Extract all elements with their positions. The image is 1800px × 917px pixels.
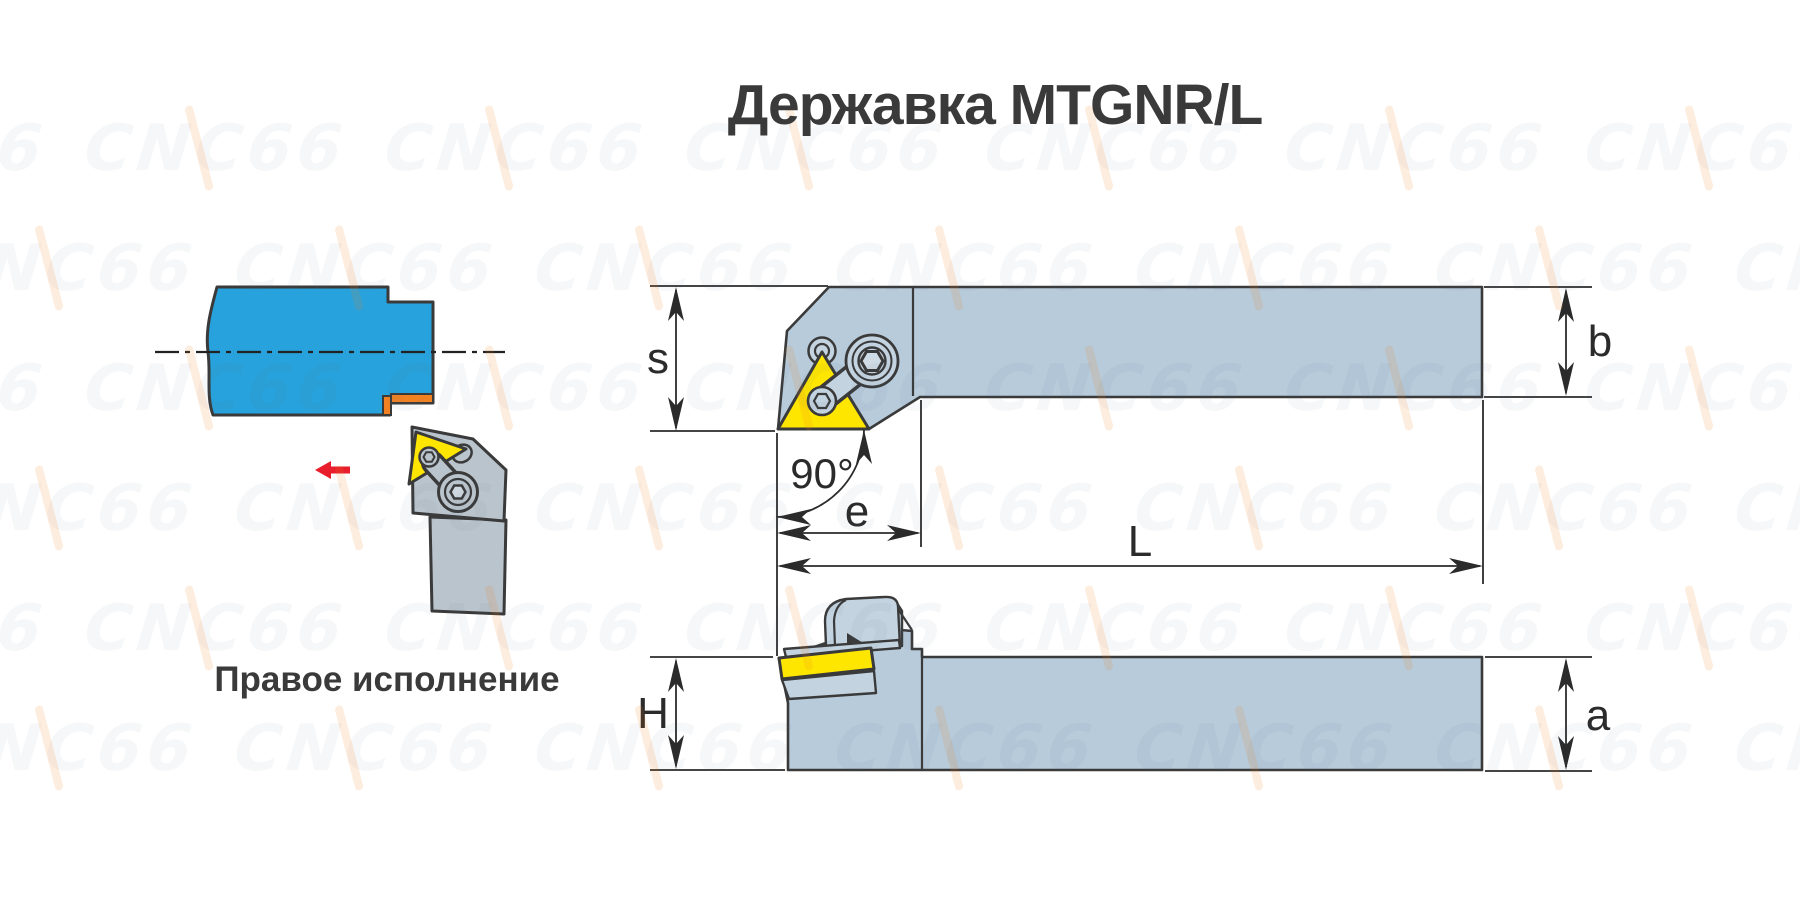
side-view xyxy=(779,597,1482,770)
top-view xyxy=(778,287,1482,429)
dim-e-label: e xyxy=(845,487,869,536)
clamp-arch xyxy=(825,597,900,646)
dim-s-label: s xyxy=(647,334,669,383)
clamp-screw-hex-icon xyxy=(451,486,466,499)
dim-H: H xyxy=(637,657,785,770)
dim-L-label: L xyxy=(1128,517,1152,566)
dim-H-label: H xyxy=(637,689,669,738)
turning-illustration xyxy=(155,287,506,614)
dim-b-label: b xyxy=(1588,317,1612,366)
diagram-page: s b 90° e xyxy=(0,0,1800,917)
toolholder-illustration xyxy=(409,427,506,614)
feed-arrow-icon xyxy=(315,461,350,479)
machined-surface-icon xyxy=(391,394,433,403)
insert-screw-top-icon xyxy=(808,387,836,415)
page-title: Державка MTGNR/L xyxy=(728,72,1263,138)
insert-screw-icon xyxy=(420,448,439,467)
dim-a: a xyxy=(1485,657,1611,771)
right-hand-caption: Правое исполнение xyxy=(214,660,559,700)
dim-a-label: a xyxy=(1586,691,1611,740)
clamp-screw-top-hex-icon xyxy=(861,352,883,371)
holder-shank xyxy=(430,517,506,614)
machined-shoulder-icon xyxy=(383,396,391,415)
dim-L: L xyxy=(777,400,1483,584)
dim-b: b xyxy=(1484,287,1612,397)
